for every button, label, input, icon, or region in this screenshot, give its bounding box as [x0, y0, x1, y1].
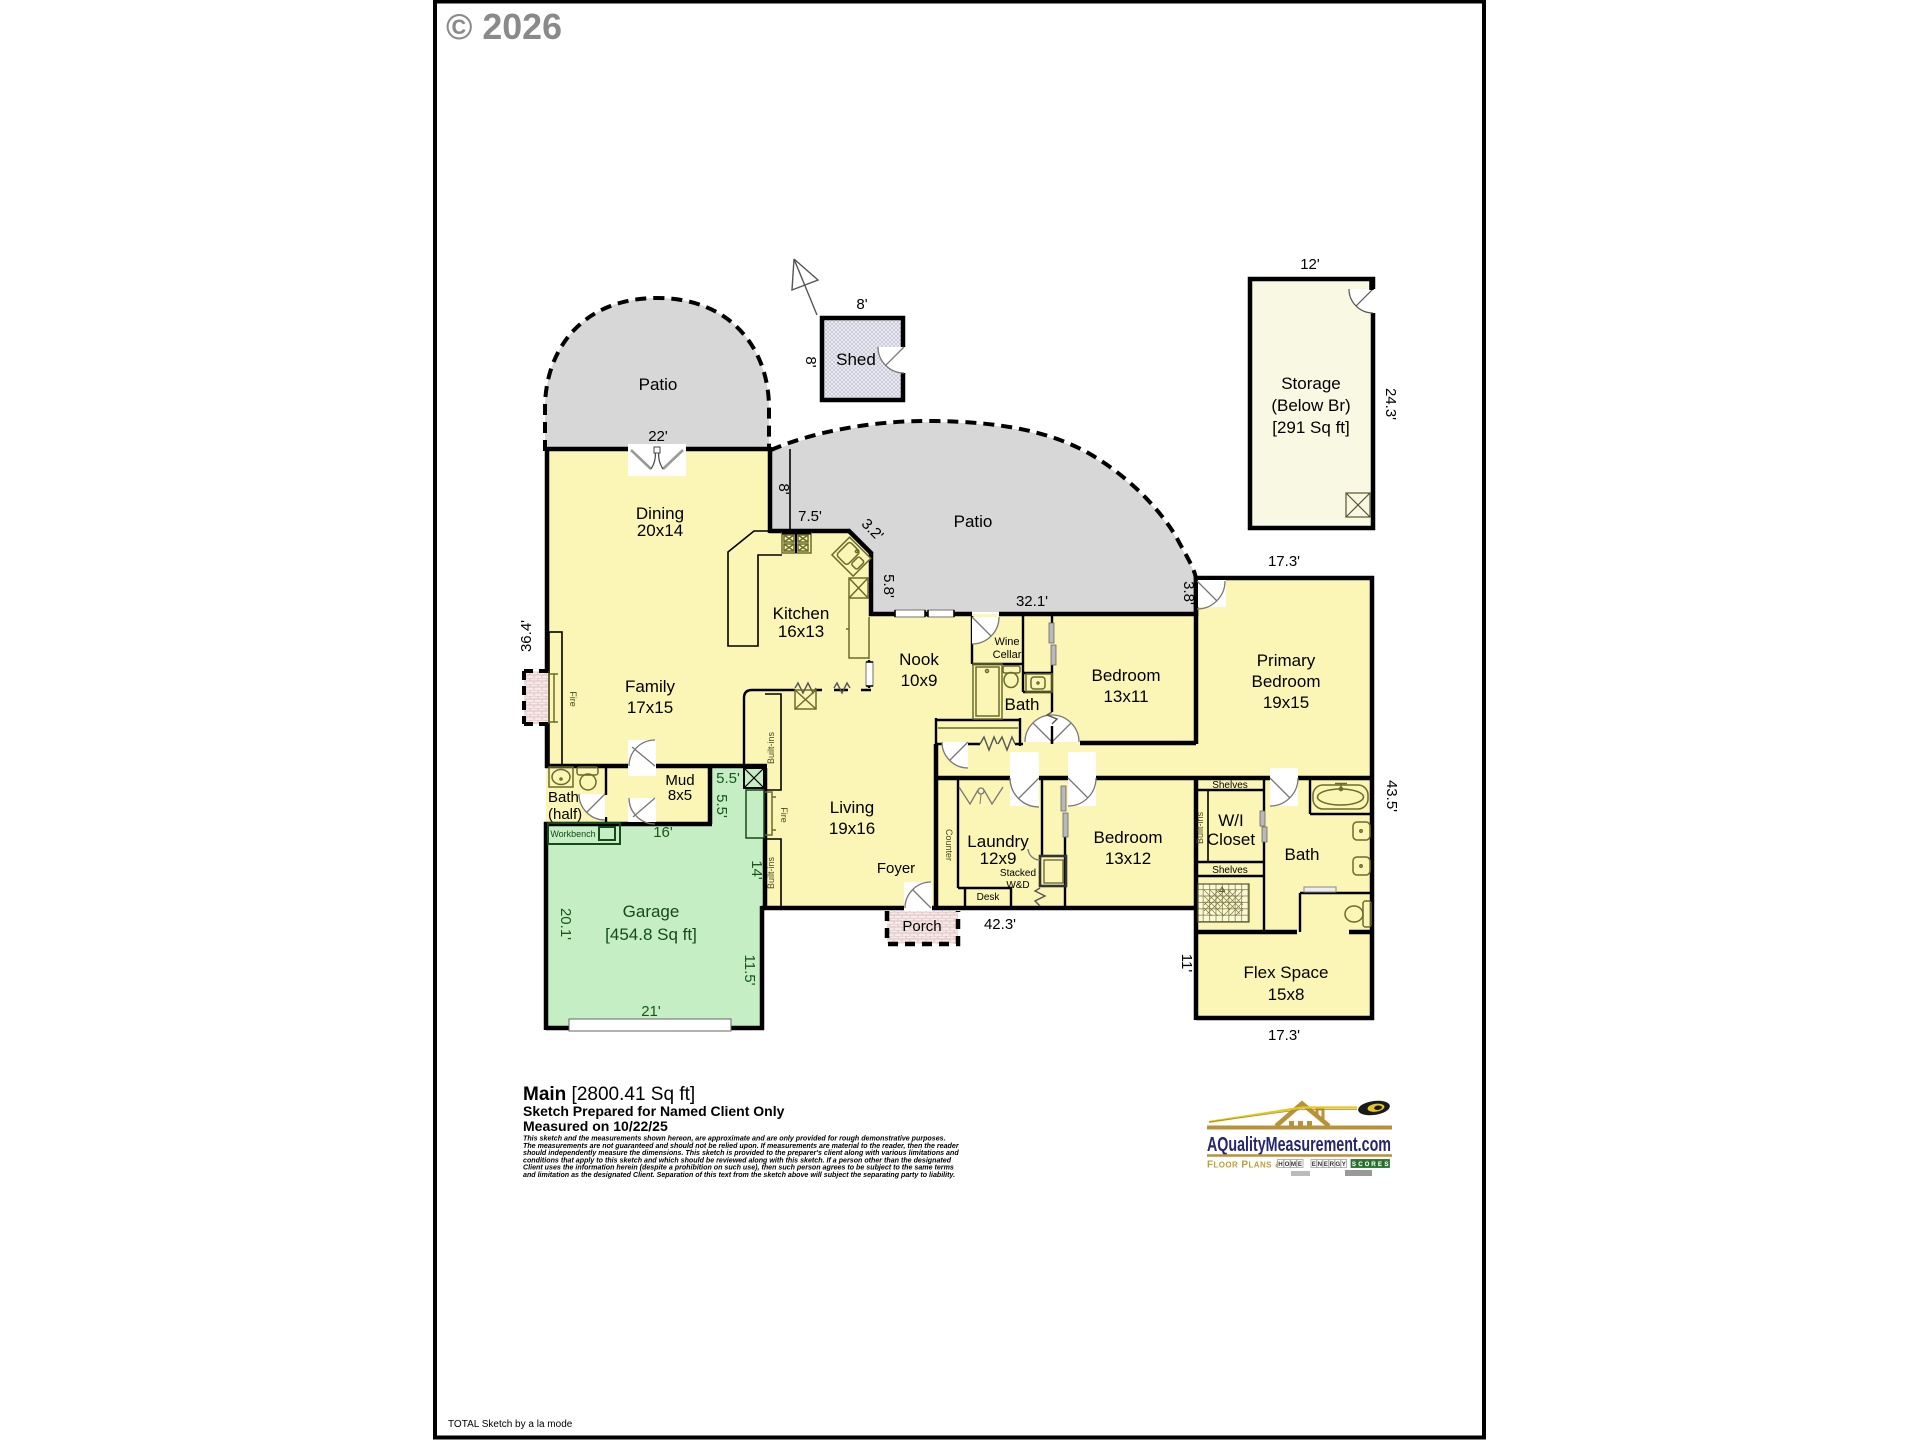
svg-text:E: E [1298, 1161, 1302, 1168]
svg-text:Primary: Primary [1257, 651, 1316, 670]
svg-text:10x9: 10x9 [901, 671, 938, 690]
svg-text:R: R [1330, 1161, 1335, 1168]
svg-text:21': 21' [641, 1003, 661, 1020]
svg-text:17.3': 17.3' [1268, 1027, 1300, 1044]
svg-text:M: M [1291, 1161, 1296, 1168]
svg-text:Living: Living [830, 798, 874, 817]
svg-text:Built-ins: Built-ins [766, 856, 776, 889]
svg-text:Bath: Bath [548, 789, 579, 806]
svg-text:Shelves: Shelves [1212, 780, 1248, 791]
svg-text:5.5': 5.5' [716, 770, 740, 787]
svg-text:Flex Space: Flex Space [1243, 963, 1328, 982]
svg-text:19x15: 19x15 [1263, 693, 1309, 712]
svg-text:Workbench: Workbench [550, 829, 595, 839]
svg-text:Counter: Counter [944, 829, 954, 861]
svg-text:Closet: Closet [1207, 830, 1255, 849]
svg-text:Patio: Patio [639, 375, 678, 394]
svg-text:Porch: Porch [902, 918, 941, 935]
svg-text:8x5: 8x5 [668, 787, 692, 804]
svg-text:Fire: Fire [568, 691, 578, 707]
svg-text:20x14: 20x14 [637, 521, 683, 540]
svg-text:17x15: 17x15 [627, 698, 673, 717]
svg-text:43.5': 43.5' [1383, 780, 1400, 812]
svg-text:Foyer: Foyer [877, 860, 915, 877]
svg-text:O: O [1365, 1161, 1370, 1168]
svg-text:5.5': 5.5' [713, 794, 730, 818]
svg-text:8': 8' [802, 356, 819, 367]
svg-text:12': 12' [1300, 256, 1320, 273]
svg-text:O: O [1285, 1161, 1290, 1168]
svg-text:AQualityMeasurement.com: AQualityMeasurement.com [1207, 1134, 1391, 1156]
svg-text:FLOOR PLANS &: FLOOR PLANS & [1207, 1160, 1283, 1171]
svg-text:Bedroom: Bedroom [1094, 828, 1163, 847]
svg-text:Built-ins: Built-ins [766, 731, 776, 764]
svg-text:11.5': 11.5' [741, 955, 758, 986]
svg-text:R: R [1371, 1161, 1376, 1168]
svg-text:17.3': 17.3' [1268, 553, 1300, 570]
svg-text:8': 8' [856, 296, 867, 313]
svg-text:Fire: Fire [779, 807, 789, 823]
svg-text:Cellar: Cellar [993, 649, 1022, 661]
svg-text:Kitchen: Kitchen [773, 604, 830, 623]
svg-text:Measured on 10/22/25: Measured on 10/22/25 [523, 1118, 668, 1134]
svg-text:Nook: Nook [899, 650, 939, 669]
svg-text:E: E [1312, 1161, 1316, 1168]
svg-text:11': 11' [1178, 954, 1195, 973]
svg-text:20.1': 20.1' [557, 908, 574, 940]
svg-text:13x12: 13x12 [1105, 849, 1151, 868]
svg-text:Built-ins: Built-ins [1195, 811, 1205, 844]
svg-text:7.5': 7.5' [798, 508, 822, 525]
svg-text:N: N [1318, 1161, 1323, 1168]
svg-text:G: G [1335, 1161, 1340, 1168]
svg-text:8': 8' [775, 483, 792, 494]
svg-text:[291 Sq ft]: [291 Sq ft] [1272, 418, 1350, 437]
svg-text:Wine: Wine [994, 636, 1019, 648]
svg-text:E: E [1324, 1161, 1328, 1168]
svg-text:15x8: 15x8 [1268, 985, 1305, 1004]
svg-text:and limitation as the designat: and limitation as the designated Client.… [523, 1171, 955, 1179]
svg-text:S: S [1384, 1161, 1388, 1168]
svg-text:Sketch Prepared for Named Clie: Sketch Prepared for Named Client Only [523, 1103, 785, 1119]
svg-text:Patio: Patio [954, 512, 993, 531]
svg-text:Shed: Shed [836, 350, 876, 369]
svg-text:Stacked: Stacked [1000, 868, 1036, 879]
svg-text:12x9: 12x9 [980, 849, 1017, 868]
svg-text:S: S [1352, 1161, 1356, 1168]
svg-text:5.8': 5.8' [880, 574, 897, 598]
svg-text:(Below Br): (Below Br) [1271, 396, 1350, 415]
svg-text:Bath: Bath [1285, 845, 1320, 864]
svg-text:24.3': 24.3' [1382, 388, 1399, 420]
svg-text:W/I: W/I [1218, 811, 1244, 830]
svg-text:Garage: Garage [623, 902, 680, 921]
svg-text:13x11: 13x11 [1103, 687, 1148, 706]
svg-text:32.1': 32.1' [1016, 593, 1048, 610]
svg-text:Bedroom: Bedroom [1092, 666, 1161, 685]
svg-text:19x16: 19x16 [829, 819, 875, 838]
svg-text:W&D: W&D [1006, 880, 1029, 891]
svg-text:E: E [1378, 1161, 1382, 1168]
svg-text:H: H [1278, 1161, 1283, 1168]
svg-text:3.8': 3.8' [1180, 581, 1197, 605]
svg-text:14': 14' [748, 860, 765, 880]
svg-text:36.4': 36.4' [518, 620, 535, 652]
svg-text:Storage: Storage [1281, 374, 1341, 393]
svg-text:C: C [1358, 1161, 1363, 1168]
svg-text:42.3': 42.3' [984, 916, 1016, 933]
svg-text:Bedroom: Bedroom [1252, 672, 1321, 691]
svg-text:© 2026: © 2026 [446, 6, 562, 47]
svg-text:Main [2800.41 Sq ft]: Main [2800.41 Sq ft] [523, 1084, 695, 1105]
svg-text:Family: Family [625, 677, 676, 696]
svg-text:16x13: 16x13 [778, 622, 824, 641]
svg-text:(half): (half) [548, 806, 582, 823]
svg-text:16': 16' [653, 824, 673, 841]
svg-text:22': 22' [648, 428, 668, 445]
svg-text:Shelves: Shelves [1212, 865, 1248, 876]
svg-text:[454.8 Sq ft]: [454.8 Sq ft] [605, 925, 697, 944]
svg-text:Bath: Bath [1005, 695, 1040, 714]
svg-text:Desk: Desk [977, 892, 1001, 903]
svg-text:TOTAL Sketch by a la mode: TOTAL Sketch by a la mode [448, 1419, 573, 1430]
